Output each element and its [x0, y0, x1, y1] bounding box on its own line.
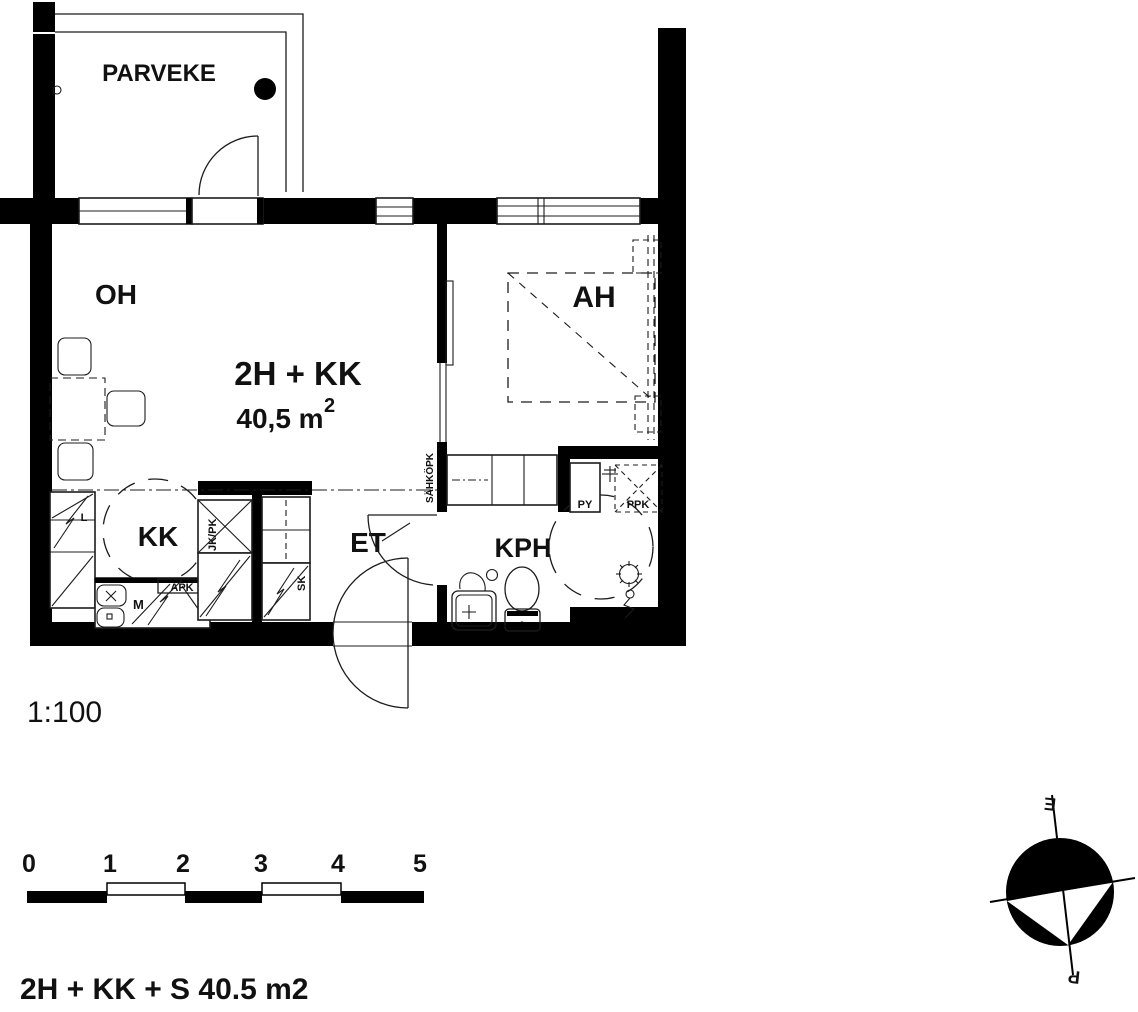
radiator: [633, 240, 661, 273]
scale-tick: 4: [331, 850, 345, 878]
exterior-walls: [0, 28, 686, 646]
bedroom-window: [497, 198, 640, 224]
scale-label: 1:100: [27, 696, 102, 729]
basin-cabinet: PY: [570, 463, 600, 512]
bathroom-label: KPH: [494, 533, 551, 563]
scale-tick: 5: [413, 850, 427, 878]
scale-indicator: 1:100 0 1 2 3 4 5: [22, 696, 427, 903]
floor-plan-canvas: PARVEKE: [0, 0, 1138, 1012]
electrical-panel-label: SÄHKÖPK: [423, 452, 436, 503]
bedroom-wardrobes: [447, 455, 557, 505]
scale-tick: 2: [176, 850, 190, 878]
washing-machine: PPK: [615, 465, 662, 512]
scale-tick: 0: [22, 850, 36, 878]
scale-bar-numbers: 0 1 2 3 4 5: [22, 850, 427, 878]
dining-chair: [58, 338, 91, 375]
washbasin: [452, 570, 498, 631]
basin-cabinet-label: PY: [578, 499, 593, 511]
front-door: [333, 558, 412, 708]
living-room-label: OH: [95, 279, 137, 310]
bathroom-door-arc: [368, 515, 433, 585]
stove-label: L: [81, 512, 88, 524]
living-room-window: [376, 198, 413, 224]
apartment-area-superscript: 2: [324, 395, 335, 417]
compass-south-label: E: [1043, 793, 1057, 814]
cleaning-closet-label: SK: [296, 576, 308, 591]
tap-symbol: [602, 466, 618, 482]
balcony-column-dot: [254, 78, 276, 100]
cleaning-closet: SK: [262, 497, 310, 620]
sink-counter: M APK: [95, 578, 210, 628]
fridge-freezer: JK/PK: [198, 500, 252, 620]
dining-table: [50, 338, 145, 480]
scale-tick: 3: [254, 850, 268, 878]
sink-label: M: [133, 597, 144, 612]
compass: E P: [990, 793, 1135, 987]
toilet: [505, 567, 540, 631]
kitchenette: KK L M APK: [50, 479, 252, 628]
balcony-door-arc: [199, 136, 258, 195]
hallway-label: ET: [350, 527, 386, 558]
scale-tick: 1: [103, 850, 117, 878]
living-room: OH 2H + KK 40,5 m 2: [50, 279, 453, 490]
compass-north-label: P: [1067, 966, 1081, 987]
dining-chair: [58, 443, 93, 480]
kitchenette-label: KK: [138, 521, 178, 552]
front-door-arc-outer: [333, 633, 408, 708]
dining-chair: [107, 391, 145, 426]
balcony-railing-inner: [55, 32, 286, 192]
balcony-label: PARVEKE: [102, 60, 216, 87]
floor-plan-page: PARVEKE: [0, 0, 1138, 1012]
dishwasher-label: APK: [170, 582, 193, 594]
stove-counter: L: [50, 492, 95, 608]
apartment-area: 40,5 m: [236, 403, 323, 434]
washing-machine-label: PPK: [627, 499, 650, 511]
balcony-door-opening: [192, 198, 263, 224]
apartment-title: 2H + KK: [234, 355, 362, 392]
scale-bar: [27, 883, 424, 903]
bedroom-label: AH: [572, 281, 615, 314]
fridge-freezer-label: JK/PK: [207, 519, 219, 551]
balcony-window: [79, 198, 192, 224]
footer-label: 2H + KK + S 40.5 m2: [20, 973, 309, 1006]
balcony: PARVEKE: [33, 2, 303, 198]
balcony-railing-outer: [55, 14, 303, 192]
